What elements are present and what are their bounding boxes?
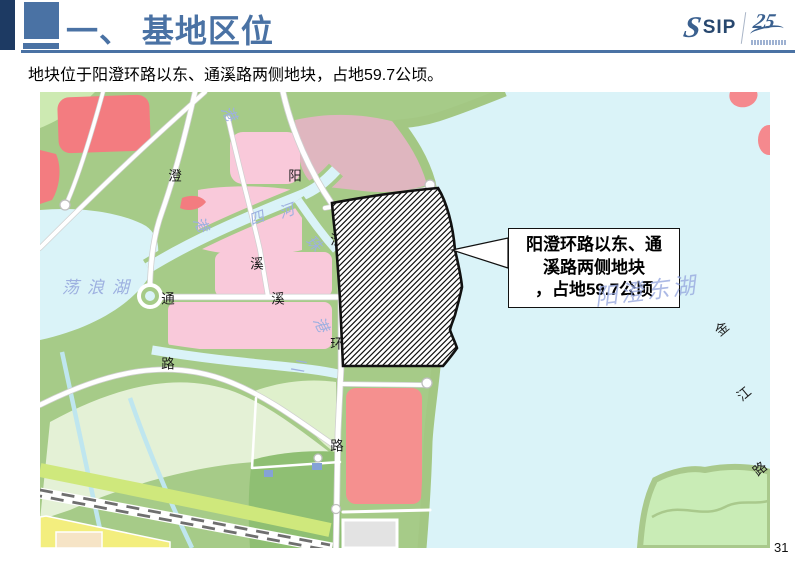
header-dark-bar (0, 0, 15, 50)
site-hatch-polygon (332, 188, 462, 366)
pink-block-4 (168, 302, 332, 349)
sip-s-mark-icon: S (681, 13, 703, 43)
red-block-topleft (57, 94, 151, 153)
pink-block-3 (215, 252, 332, 297)
anniversary-caption-bar (751, 40, 787, 45)
subtitle-text: 地块位于阳澄环路以东、通溪路两侧地块，占地59.7公顷。 (28, 61, 443, 85)
svg-text:荡浪湖: 荡浪湖 (62, 278, 137, 297)
anniversary-25-mark: 25 (750, 8, 788, 48)
sip-logo-text: SIP (703, 17, 737, 39)
svg-text:路: 路 (161, 357, 175, 372)
header-accent-stripe (23, 43, 59, 49)
header-accent-square (24, 2, 59, 39)
location-map: 澄 阳 溪 通 溪 澄 环 路 路 金 江 路 港 港 四 河 珠 港 二 (40, 92, 770, 548)
slide: 一、 基地区位 S SIP 25 地块位于阳澄环路以东、通溪路两侧地块，占地59… (0, 0, 800, 565)
sip-logo: S SIP 25 (684, 6, 796, 50)
svg-text:路: 路 (330, 439, 344, 454)
svg-text:澄: 澄 (168, 169, 182, 184)
page-number: 31 (774, 540, 788, 555)
gray-block (343, 520, 397, 548)
culdesac-loop (137, 283, 163, 309)
svg-text:通: 通 (161, 292, 175, 307)
page-title: 一、 基地区位 (66, 6, 274, 52)
map-canvas: 澄 阳 溪 通 溪 澄 环 路 路 金 江 路 港 港 四 河 珠 港 二 (40, 92, 770, 548)
svg-text:阳: 阳 (288, 169, 302, 184)
blue-building-2 (312, 463, 322, 470)
blue-building-1 (264, 470, 273, 477)
red-block-bottom (346, 388, 422, 504)
header-rule (21, 50, 795, 53)
cream-block (56, 532, 102, 548)
svg-text:溪: 溪 (250, 257, 264, 272)
logo-divider (741, 12, 746, 44)
callout-line-1: 阳澄环路以东、通 (526, 234, 662, 257)
island (640, 467, 770, 548)
svg-text:溪: 溪 (271, 292, 285, 307)
